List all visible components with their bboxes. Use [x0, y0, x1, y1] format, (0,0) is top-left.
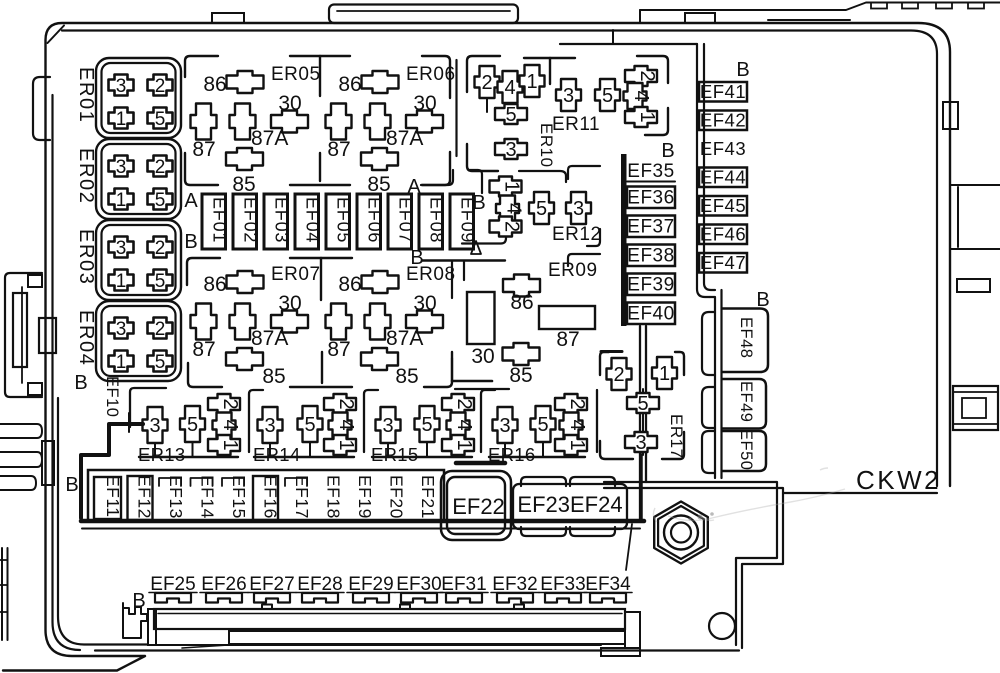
svg-text:2: 2 [613, 364, 624, 386]
svg-text:ER15: ER15 [371, 444, 418, 465]
svg-text:30: 30 [278, 92, 301, 115]
svg-text:3: 3 [573, 198, 584, 220]
svg-text:EF39: EF39 [627, 275, 674, 296]
svg-text:ER14: ER14 [253, 444, 300, 465]
svg-text:ER11: ER11 [552, 114, 600, 135]
svg-text:EF43: EF43 [700, 138, 746, 159]
svg-text:ER01: ER01 [75, 67, 97, 123]
svg-text:1: 1 [526, 71, 537, 93]
svg-text:5: 5 [187, 414, 198, 436]
svg-text:5: 5 [537, 414, 548, 436]
svg-text:1: 1 [566, 439, 588, 450]
svg-text:EF47: EF47 [700, 252, 746, 273]
svg-text:2: 2 [155, 319, 166, 340]
svg-text:1: 1 [116, 352, 127, 373]
svg-text:ER17: ER17 [667, 414, 686, 459]
svg-text:4: 4 [504, 77, 515, 99]
svg-text:3: 3 [116, 76, 127, 97]
svg-text:B: B [74, 372, 87, 394]
svg-text:B: B [736, 59, 749, 81]
svg-text:EF08: EF08 [427, 197, 447, 243]
svg-text:87: 87 [192, 138, 215, 161]
svg-text:87A: 87A [386, 127, 423, 150]
svg-text:EF36: EF36 [627, 188, 674, 209]
svg-text:2: 2 [155, 76, 166, 97]
svg-text:1: 1 [116, 109, 127, 130]
svg-text:3: 3 [264, 415, 275, 437]
svg-text:EF17: EF17 [292, 475, 312, 519]
svg-text:86: 86 [203, 73, 226, 96]
svg-text:4: 4 [453, 419, 475, 430]
svg-text:30: 30 [471, 345, 494, 368]
svg-text:3: 3 [635, 432, 646, 454]
svg-text:3: 3 [382, 415, 393, 437]
svg-text:EF06: EF06 [365, 197, 385, 243]
svg-text:87: 87 [327, 338, 350, 361]
svg-text:4: 4 [566, 419, 588, 430]
svg-text:ER09: ER09 [548, 260, 598, 281]
svg-text:EF02: EF02 [241, 197, 261, 243]
svg-text:EF49: EF49 [737, 381, 755, 422]
svg-text:ER03: ER03 [75, 229, 97, 285]
svg-text:5: 5 [637, 393, 648, 415]
svg-text:ER04: ER04 [75, 310, 97, 366]
svg-text:3: 3 [149, 415, 160, 437]
svg-text:EF40: EF40 [627, 304, 674, 325]
svg-text:85: 85 [395, 365, 418, 388]
svg-text:87A: 87A [251, 127, 288, 150]
svg-text:85: 85 [262, 365, 285, 388]
svg-text:EF35: EF35 [627, 161, 674, 182]
svg-text:B: B [184, 231, 197, 253]
svg-text:5: 5 [155, 271, 166, 292]
svg-text:2: 2 [219, 398, 241, 409]
svg-text:ER13: ER13 [138, 444, 185, 465]
svg-text:2: 2 [335, 398, 357, 409]
svg-text:EF04: EF04 [303, 197, 323, 243]
svg-text:86: 86 [510, 291, 533, 314]
svg-text:5: 5 [536, 198, 547, 220]
svg-text:A: A [184, 190, 198, 212]
svg-text:EF37: EF37 [627, 217, 674, 238]
svg-text:3: 3 [499, 415, 510, 437]
svg-text:86: 86 [338, 273, 361, 296]
svg-text:5: 5 [155, 109, 166, 130]
svg-text:EF13: EF13 [166, 475, 186, 519]
svg-text:87A: 87A [386, 327, 423, 350]
svg-text:1: 1 [116, 190, 127, 211]
svg-text:30: 30 [413, 92, 436, 115]
svg-text:EF20: EF20 [387, 475, 407, 519]
svg-text:30: 30 [278, 292, 301, 315]
svg-text:EF48: EF48 [737, 317, 755, 358]
svg-text:4: 4 [335, 419, 357, 430]
svg-text:87: 87 [556, 328, 579, 351]
svg-text:4: 4 [219, 419, 241, 430]
svg-text:EF10: EF10 [103, 376, 121, 417]
svg-text:3: 3 [116, 238, 127, 259]
svg-text:1: 1 [636, 111, 658, 122]
svg-text:B: B [661, 140, 674, 162]
svg-text:3: 3 [563, 85, 574, 107]
svg-text:2: 2 [155, 238, 166, 259]
svg-text:86: 86 [338, 73, 361, 96]
svg-text:ER05: ER05 [271, 64, 321, 85]
svg-text:ER12: ER12 [552, 224, 602, 245]
svg-text:87A: 87A [251, 327, 288, 350]
svg-text:EF05: EF05 [334, 197, 354, 243]
svg-text:5: 5 [421, 414, 432, 436]
svg-text:85: 85 [509, 364, 532, 387]
svg-text:EF22: EF22 [452, 494, 505, 519]
svg-text:EF45: EF45 [700, 195, 746, 216]
svg-text:5: 5 [304, 414, 315, 436]
svg-text:2: 2 [501, 221, 523, 232]
svg-text:3: 3 [505, 139, 516, 161]
svg-text:EF07: EF07 [396, 197, 416, 243]
svg-text:87: 87 [192, 338, 215, 361]
svg-text:EF41: EF41 [700, 81, 746, 102]
svg-text:EF46: EF46 [700, 224, 746, 245]
svg-text:1: 1 [453, 439, 475, 450]
svg-text:ER02: ER02 [75, 148, 97, 204]
svg-text:5: 5 [602, 85, 613, 107]
svg-text:ER07: ER07 [271, 264, 321, 285]
svg-text:1: 1 [335, 439, 357, 450]
svg-text:86: 86 [203, 273, 226, 296]
svg-text:EF03: EF03 [272, 197, 292, 243]
svg-text:B: B [65, 474, 78, 496]
svg-text:B: B [756, 289, 769, 311]
svg-text:EF44: EF44 [700, 167, 746, 188]
svg-text:EF01: EF01 [210, 197, 230, 243]
svg-text:EF50: EF50 [737, 429, 755, 470]
svg-text:5: 5 [505, 104, 516, 126]
svg-text:ER06: ER06 [406, 64, 456, 85]
svg-text:EF42: EF42 [700, 110, 746, 131]
svg-text:CKW2: CKW2 [856, 465, 941, 495]
svg-text:4: 4 [630, 90, 652, 101]
svg-text:2: 2 [481, 72, 492, 94]
svg-text:3: 3 [116, 319, 127, 340]
svg-text:EF15: EF15 [229, 475, 249, 519]
svg-text:1: 1 [501, 181, 523, 192]
svg-text:EF18: EF18 [324, 475, 344, 519]
svg-text:5: 5 [155, 190, 166, 211]
svg-text:EF38: EF38 [627, 246, 674, 267]
svg-text:EF19: EF19 [355, 475, 375, 519]
svg-text:EF14: EF14 [198, 475, 218, 519]
svg-text:EF21: EF21 [418, 475, 438, 519]
svg-text:B: B [472, 192, 485, 214]
svg-text:30: 30 [413, 292, 436, 315]
svg-text:2: 2 [636, 70, 658, 81]
svg-text:87: 87 [327, 138, 350, 161]
svg-text:2: 2 [566, 398, 588, 409]
svg-text:1: 1 [659, 363, 670, 385]
svg-text:4: 4 [503, 203, 525, 214]
svg-text:1: 1 [116, 271, 127, 292]
svg-text:5: 5 [155, 352, 166, 373]
svg-text:EF23EF24: EF23EF24 [517, 492, 622, 517]
svg-text:1: 1 [219, 439, 241, 450]
svg-text:2: 2 [453, 398, 475, 409]
svg-text:3: 3 [116, 157, 127, 178]
svg-text:2: 2 [155, 157, 166, 178]
